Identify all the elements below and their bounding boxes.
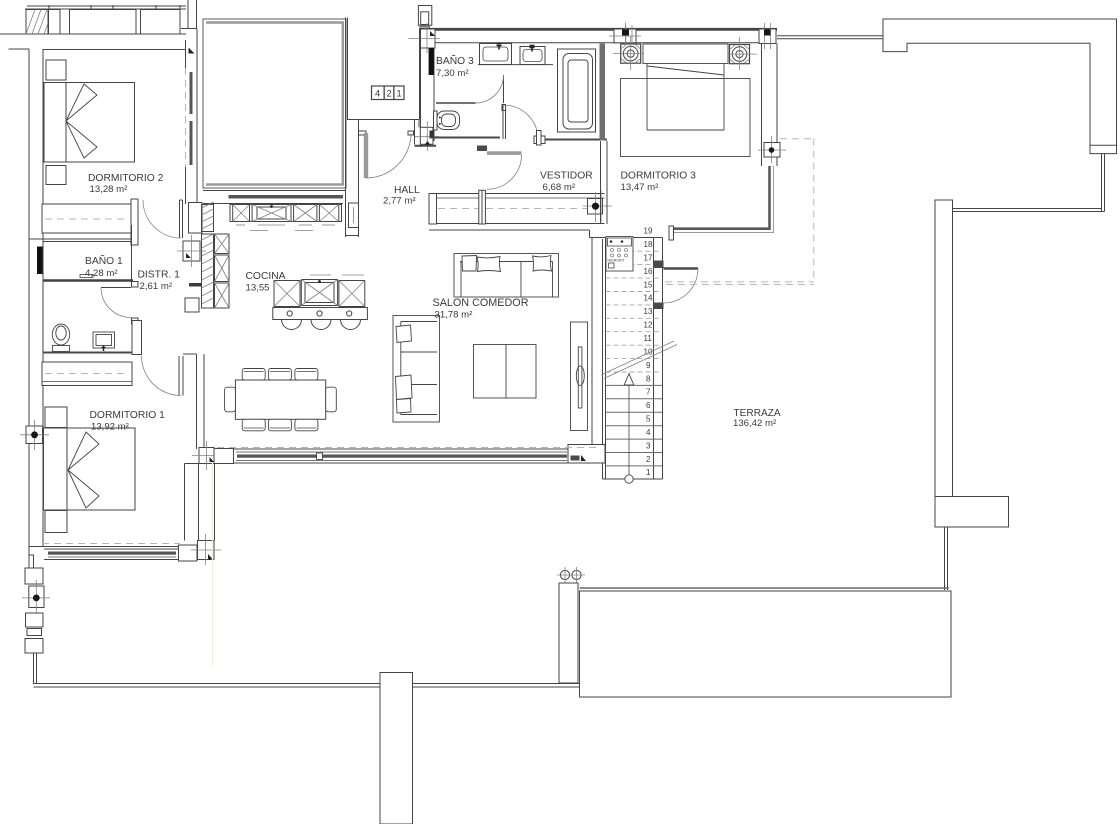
svg-text:15: 15 (644, 280, 653, 289)
svg-text:136,42 m²: 136,42 m² (733, 418, 777, 429)
svg-text:7,30 m²: 7,30 m² (436, 68, 469, 79)
svg-text:VESTIDOR: VESTIDOR (540, 171, 593, 182)
svg-text:DISTR. 1: DISTR. 1 (138, 270, 181, 281)
svg-text:5: 5 (646, 415, 651, 424)
svg-text:7: 7 (646, 388, 651, 397)
svg-text:19: 19 (644, 227, 653, 236)
svg-text:2,61 m²: 2,61 m² (140, 281, 173, 292)
svg-text:16: 16 (644, 267, 653, 276)
svg-text:12: 12 (644, 321, 653, 330)
svg-text:2: 2 (387, 89, 392, 99)
svg-text:14: 14 (644, 294, 653, 303)
svg-text:9: 9 (646, 361, 651, 370)
svg-text:13,55: 13,55 (246, 283, 270, 294)
svg-text:17: 17 (644, 254, 653, 263)
svg-text:SALON COMEDOR: SALON COMEDOR (433, 297, 529, 309)
svg-text:DORMITORIO 3: DORMITORIO 3 (621, 171, 697, 182)
svg-text:DORMITORIO 1: DORMITORIO 1 (90, 410, 166, 421)
svg-text:4,28 m²: 4,28 m² (85, 268, 118, 279)
svg-text:HALL: HALL (394, 185, 420, 196)
svg-text:13,92 m²: 13,92 m² (91, 422, 130, 433)
svg-text:1: 1 (646, 468, 651, 477)
svg-text:31,78 m²: 31,78 m² (435, 310, 474, 321)
svg-text:3: 3 (646, 441, 651, 450)
svg-text:1: 1 (397, 89, 402, 99)
svg-text:6,68 m²: 6,68 m² (543, 182, 576, 193)
svg-text:6: 6 (646, 401, 651, 410)
svg-text:13,47 m²: 13,47 m² (621, 182, 660, 193)
svg-text:13: 13 (644, 307, 653, 316)
svg-text:11: 11 (644, 334, 653, 343)
svg-text:4: 4 (375, 89, 380, 99)
svg-text:BAÑO 3: BAÑO 3 (436, 54, 474, 67)
svg-text:4: 4 (646, 428, 651, 437)
svg-text:13,28 m²: 13,28 m² (90, 184, 129, 195)
svg-text:8: 8 (646, 374, 651, 383)
svg-text:2,77 m²: 2,77 m² (383, 196, 416, 207)
svg-text:18: 18 (644, 240, 653, 249)
svg-text:BAÑO 1: BAÑO 1 (85, 254, 123, 267)
svg-text:DORMITORIO 2: DORMITORIO 2 (88, 173, 164, 184)
svg-text:HIDROKIT: HIDROKIT (608, 259, 626, 263)
svg-text:2: 2 (646, 455, 651, 464)
